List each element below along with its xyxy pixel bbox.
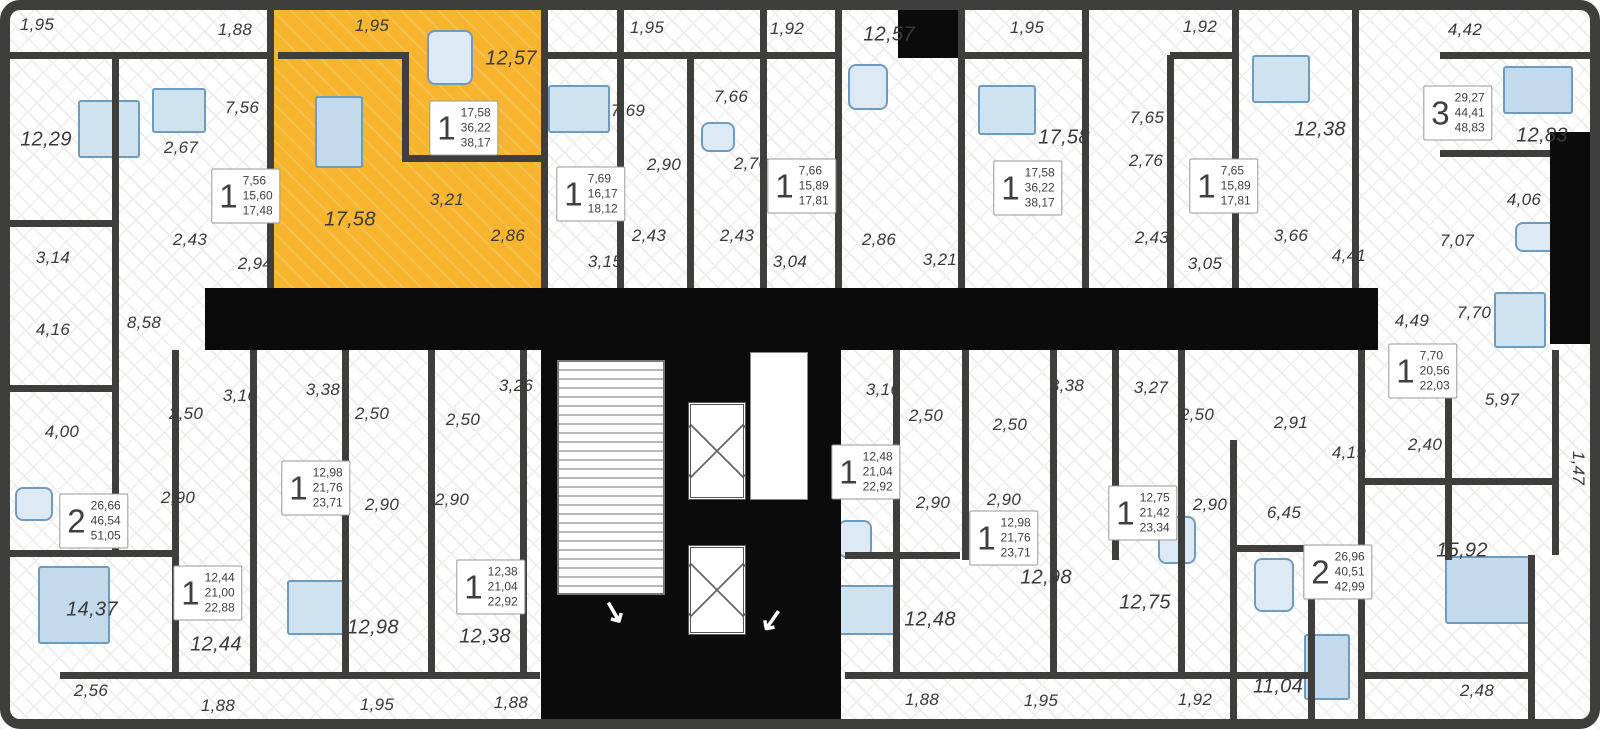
unit-rooms-count: 1 bbox=[437, 112, 455, 145]
unit-rooms-count: 2 bbox=[67, 505, 85, 538]
furniture-bed-icon bbox=[978, 85, 1036, 135]
room-area-label: 1,88 bbox=[201, 696, 235, 716]
room-area-label: 17,58 bbox=[324, 209, 376, 232]
wall bbox=[835, 0, 842, 292]
unit-areas: 17,5836,2238,17 bbox=[461, 106, 491, 151]
unit-info-card[interactable]: 117,5836,2238,17 bbox=[429, 101, 498, 156]
furniture-sofa-icon bbox=[1503, 66, 1573, 114]
room-area-label: 2,50 bbox=[446, 410, 480, 430]
room-area-label: 15,92 bbox=[1436, 540, 1488, 563]
unit-rooms-count: 1 bbox=[1396, 355, 1414, 388]
lobby bbox=[750, 352, 808, 500]
furniture-table-icon bbox=[701, 122, 735, 152]
room-area-label: 12,57 bbox=[485, 48, 537, 71]
furniture-table-icon bbox=[427, 30, 473, 85]
room-area-label: 2,50 bbox=[993, 415, 1027, 435]
unit-info-card[interactable]: 112,9821,7623,71 bbox=[969, 511, 1038, 566]
room-area-label: 1,88 bbox=[494, 693, 528, 713]
furniture-bed-icon bbox=[1494, 292, 1546, 348]
room-area-label: 2,43 bbox=[720, 226, 754, 246]
unit-info-card[interactable]: 226,6646,5451,05 bbox=[59, 494, 128, 549]
wall bbox=[1360, 478, 1552, 485]
room-area-label: 1,95 bbox=[20, 15, 54, 35]
wall bbox=[172, 350, 179, 675]
furniture-bed-icon bbox=[548, 85, 610, 133]
unit-info-card[interactable]: 112,3821,0422,92 bbox=[456, 560, 525, 615]
room-area-label: 2,43 bbox=[173, 230, 207, 250]
room-area-label: 1,95 bbox=[1024, 691, 1058, 711]
room-area-label: 12,83 bbox=[1516, 125, 1568, 148]
unit-rooms-count: 1 bbox=[219, 180, 237, 213]
unit-areas: 12,7521,4223,34 bbox=[1140, 491, 1170, 536]
corridor-core bbox=[205, 288, 541, 350]
room-area-label: 3,16 bbox=[866, 380, 900, 400]
room-area-label: 3,04 bbox=[773, 252, 807, 272]
room-area-label: 11,04 bbox=[1253, 676, 1303, 699]
room-area-label: 1,92 bbox=[1183, 17, 1217, 37]
room-area-label: 2,50 bbox=[909, 406, 943, 426]
room-area-label: 1,88 bbox=[905, 690, 939, 710]
room-area-label: 12,48 bbox=[904, 609, 956, 632]
room-area-label: 8,58 bbox=[127, 313, 161, 333]
room-area-label: 7,66 bbox=[714, 87, 748, 107]
unit-areas: 12,3821,0422,92 bbox=[488, 565, 518, 610]
wall bbox=[278, 52, 408, 59]
unit-info-card[interactable]: 17,5615,6017,48 bbox=[211, 169, 280, 224]
room-area-label: 2,90 bbox=[987, 490, 1021, 510]
wall bbox=[1170, 52, 1238, 59]
room-area-label: 1,47 bbox=[1568, 451, 1588, 485]
room-area-label: 2,90 bbox=[435, 490, 469, 510]
unit-rooms-count: 1 bbox=[839, 456, 857, 489]
room-area-label: 7,07 bbox=[1440, 231, 1474, 251]
unit-rooms-count: 1 bbox=[464, 571, 482, 604]
wall bbox=[112, 52, 119, 557]
unit-rooms-count: 1 bbox=[775, 170, 793, 203]
room-area-label: 4,00 bbox=[45, 422, 79, 442]
room-area-label: 3,38 bbox=[1050, 376, 1084, 396]
room-area-label: 4,41 bbox=[1332, 246, 1366, 266]
unit-areas: 7,6515,8917,81 bbox=[1221, 164, 1251, 209]
room-area-label: 2,86 bbox=[491, 226, 525, 246]
unit-info-card[interactable]: 112,4821,0422,92 bbox=[831, 445, 900, 500]
wall bbox=[962, 52, 1085, 59]
room-area-label: 14,37 bbox=[66, 599, 118, 622]
unit-areas: 29,2744,4148,83 bbox=[1455, 91, 1485, 136]
wall bbox=[1552, 350, 1559, 555]
room-area-label: 2,76 bbox=[734, 154, 768, 174]
room-area-label: 7,69 bbox=[611, 101, 645, 121]
unit-info-card[interactable]: 226,9640,5142,99 bbox=[1303, 545, 1372, 600]
room-area-label: 2,90 bbox=[647, 155, 681, 175]
wall bbox=[1178, 350, 1185, 675]
furniture-bed-icon bbox=[837, 585, 897, 635]
wall bbox=[845, 672, 1310, 679]
room-area-label: 1,95 bbox=[355, 16, 389, 36]
unit-info-card[interactable]: 112,4421,0022,88 bbox=[173, 566, 242, 621]
unit-info-card[interactable]: 117,5836,2238,17 bbox=[993, 161, 1062, 216]
room-area-label: 7,70 bbox=[1457, 303, 1491, 323]
room-area-label: 1,92 bbox=[770, 19, 804, 39]
room-area-label: 5,97 bbox=[1485, 390, 1519, 410]
room-area-label: 7,56 bbox=[225, 98, 259, 118]
unit-areas: 12,4821,0422,92 bbox=[863, 450, 893, 495]
wall bbox=[0, 385, 115, 392]
room-area-label: 6,45 bbox=[1267, 503, 1301, 523]
room-area-label: 2,56 bbox=[74, 681, 108, 701]
unit-areas: 7,5615,6017,48 bbox=[243, 174, 273, 219]
room-area-label: 4,49 bbox=[1395, 311, 1429, 331]
furniture-bed-icon bbox=[78, 100, 140, 158]
room-area-label: 12,98 bbox=[1020, 567, 1072, 590]
unit-areas: 26,6646,5451,05 bbox=[91, 499, 121, 544]
room-area-label: 1,95 bbox=[1010, 18, 1044, 38]
wall bbox=[0, 52, 270, 59]
room-area-label: 2,90 bbox=[365, 495, 399, 515]
room-area-label: 3,26 bbox=[499, 376, 533, 396]
unit-info-card[interactable]: 329,2744,4148,83 bbox=[1423, 86, 1492, 141]
room-area-label: 12,38 bbox=[459, 626, 511, 649]
wall bbox=[428, 350, 435, 675]
unit-rooms-count: 1 bbox=[564, 178, 582, 211]
wall bbox=[1050, 350, 1057, 675]
unit-areas: 12,4421,0022,88 bbox=[205, 571, 235, 616]
furniture-sofa-icon bbox=[1445, 556, 1535, 624]
unit-info-card[interactable]: 112,7521,4223,34 bbox=[1108, 486, 1177, 541]
wall bbox=[520, 350, 527, 675]
unit-rooms-count: 1 bbox=[1001, 172, 1019, 205]
room-area-label: 3,15 bbox=[588, 252, 622, 272]
unit-rooms-count: 1 bbox=[1197, 170, 1215, 203]
unit-rooms-count: 3 bbox=[1431, 97, 1449, 130]
room-area-label: 3,14 bbox=[36, 248, 70, 268]
unit-areas: 7,6615,8917,81 bbox=[799, 164, 829, 209]
wall bbox=[0, 550, 175, 557]
unit-areas: 17,5836,2238,17 bbox=[1025, 166, 1055, 211]
wall bbox=[687, 55, 694, 292]
wall bbox=[962, 350, 969, 560]
unit-info-card[interactable]: 17,6615,8917,81 bbox=[767, 159, 836, 214]
room-area-label: 2,90 bbox=[916, 493, 950, 513]
unit-info-card[interactable]: 112,9821,7623,71 bbox=[281, 461, 350, 516]
room-area-label: 3,21 bbox=[923, 250, 957, 270]
unit-rooms-count: 1 bbox=[289, 472, 307, 505]
room-area-label: 12,75 bbox=[1119, 592, 1171, 615]
room-area-label: 7,65 bbox=[1130, 108, 1164, 128]
elevator-shaft-icon bbox=[688, 402, 746, 500]
wall bbox=[1230, 440, 1237, 725]
unit-rooms-count: 1 bbox=[1116, 497, 1134, 530]
furniture-table-icon bbox=[848, 64, 888, 110]
furniture-bed-icon bbox=[1252, 55, 1310, 103]
floor-plan: ↘↙1,951,881,9512,571,951,9212,571,951,92… bbox=[0, 0, 1600, 729]
wall bbox=[541, 0, 548, 292]
room-area-label: 2,86 bbox=[862, 230, 896, 250]
unit-info-card[interactable]: 17,6916,1718,12 bbox=[556, 167, 625, 222]
room-area-label: 4,42 bbox=[1448, 20, 1482, 40]
unit-info-card[interactable]: 17,6515,8917,81 bbox=[1189, 159, 1258, 214]
room-area-label: 1,88 bbox=[218, 20, 252, 40]
unit-rooms-count: 1 bbox=[977, 522, 995, 555]
furniture-sofa-icon bbox=[315, 96, 363, 168]
room-area-label: 2,90 bbox=[161, 488, 195, 508]
wall bbox=[1358, 350, 1365, 720]
room-area-label: 3,21 bbox=[430, 190, 464, 210]
unit-info-card[interactable]: 17,7020,5622,03 bbox=[1388, 344, 1457, 399]
room-area-label: 4,16 bbox=[36, 320, 70, 340]
room-area-label: 3,27 bbox=[1134, 378, 1168, 398]
room-area-label: 1,95 bbox=[630, 18, 664, 38]
wall bbox=[760, 0, 767, 292]
room-area-label: 2,94 bbox=[238, 254, 272, 274]
corridor-core bbox=[838, 288, 1378, 350]
room-area-label: 2,40 bbox=[1408, 435, 1442, 455]
wall bbox=[1440, 52, 1600, 59]
unit-rooms-count: 2 bbox=[1311, 556, 1329, 589]
unit-areas: 7,7020,5622,03 bbox=[1420, 349, 1450, 394]
room-area-label: 2,50 bbox=[355, 404, 389, 424]
furniture-table-icon bbox=[1254, 558, 1294, 612]
furniture-bed-icon bbox=[287, 580, 345, 635]
room-area-label: 4,19 bbox=[1332, 443, 1366, 463]
wall bbox=[1528, 555, 1535, 725]
wall bbox=[267, 0, 274, 292]
room-area-label: 1,95 bbox=[360, 695, 394, 715]
wall bbox=[0, 220, 115, 227]
room-area-label: 4,06 bbox=[1507, 190, 1541, 210]
unit-rooms-count: 1 bbox=[181, 577, 199, 610]
wall bbox=[60, 672, 540, 679]
room-area-label: 2,50 bbox=[169, 404, 203, 424]
wall bbox=[1167, 55, 1174, 292]
wall bbox=[402, 52, 409, 157]
room-area-label: 12,38 bbox=[1294, 119, 1346, 142]
room-area-label: 12,44 bbox=[190, 634, 242, 657]
unit-areas: 26,9640,5142,99 bbox=[1335, 550, 1365, 595]
room-area-label: 3,38 bbox=[306, 380, 340, 400]
room-area-label: 2,43 bbox=[1135, 228, 1169, 248]
wall bbox=[402, 155, 541, 162]
stairs-icon bbox=[557, 360, 665, 595]
wall bbox=[1360, 672, 1530, 679]
unit-areas: 7,6916,1718,12 bbox=[588, 172, 618, 217]
room-area-label: 2,76 bbox=[1129, 151, 1163, 171]
room-area-label: 2,91 bbox=[1274, 413, 1308, 433]
unit-areas: 12,9821,7623,71 bbox=[1001, 516, 1031, 561]
wall bbox=[617, 0, 624, 292]
corridor-core bbox=[1550, 132, 1600, 344]
room-area-label: 3,05 bbox=[1188, 254, 1222, 274]
furniture-table-icon bbox=[15, 487, 53, 521]
unit-areas: 12,9821,7623,71 bbox=[313, 466, 343, 511]
room-area-label: 17,58 bbox=[1038, 127, 1090, 150]
room-area-label: 12,29 bbox=[20, 129, 72, 152]
elevator-shaft-icon bbox=[688, 545, 746, 635]
room-area-label: 2,50 bbox=[1180, 405, 1214, 425]
room-area-label: 3,16 bbox=[223, 386, 257, 406]
room-area-label: 2,67 bbox=[164, 138, 198, 158]
furniture-bed-icon bbox=[152, 88, 206, 133]
wall bbox=[1232, 0, 1239, 292]
room-area-label: 1,92 bbox=[1178, 690, 1212, 710]
wall bbox=[845, 552, 960, 559]
room-area-label: 2,48 bbox=[1460, 681, 1494, 701]
room-area-label: 12,98 bbox=[347, 617, 399, 640]
room-area-label: 2,90 bbox=[1193, 495, 1227, 515]
room-area-label: 3,66 bbox=[1274, 226, 1308, 246]
room-area-label: 12,57 bbox=[863, 24, 915, 47]
room-area-label: 2,43 bbox=[632, 226, 666, 246]
wall bbox=[958, 0, 965, 292]
